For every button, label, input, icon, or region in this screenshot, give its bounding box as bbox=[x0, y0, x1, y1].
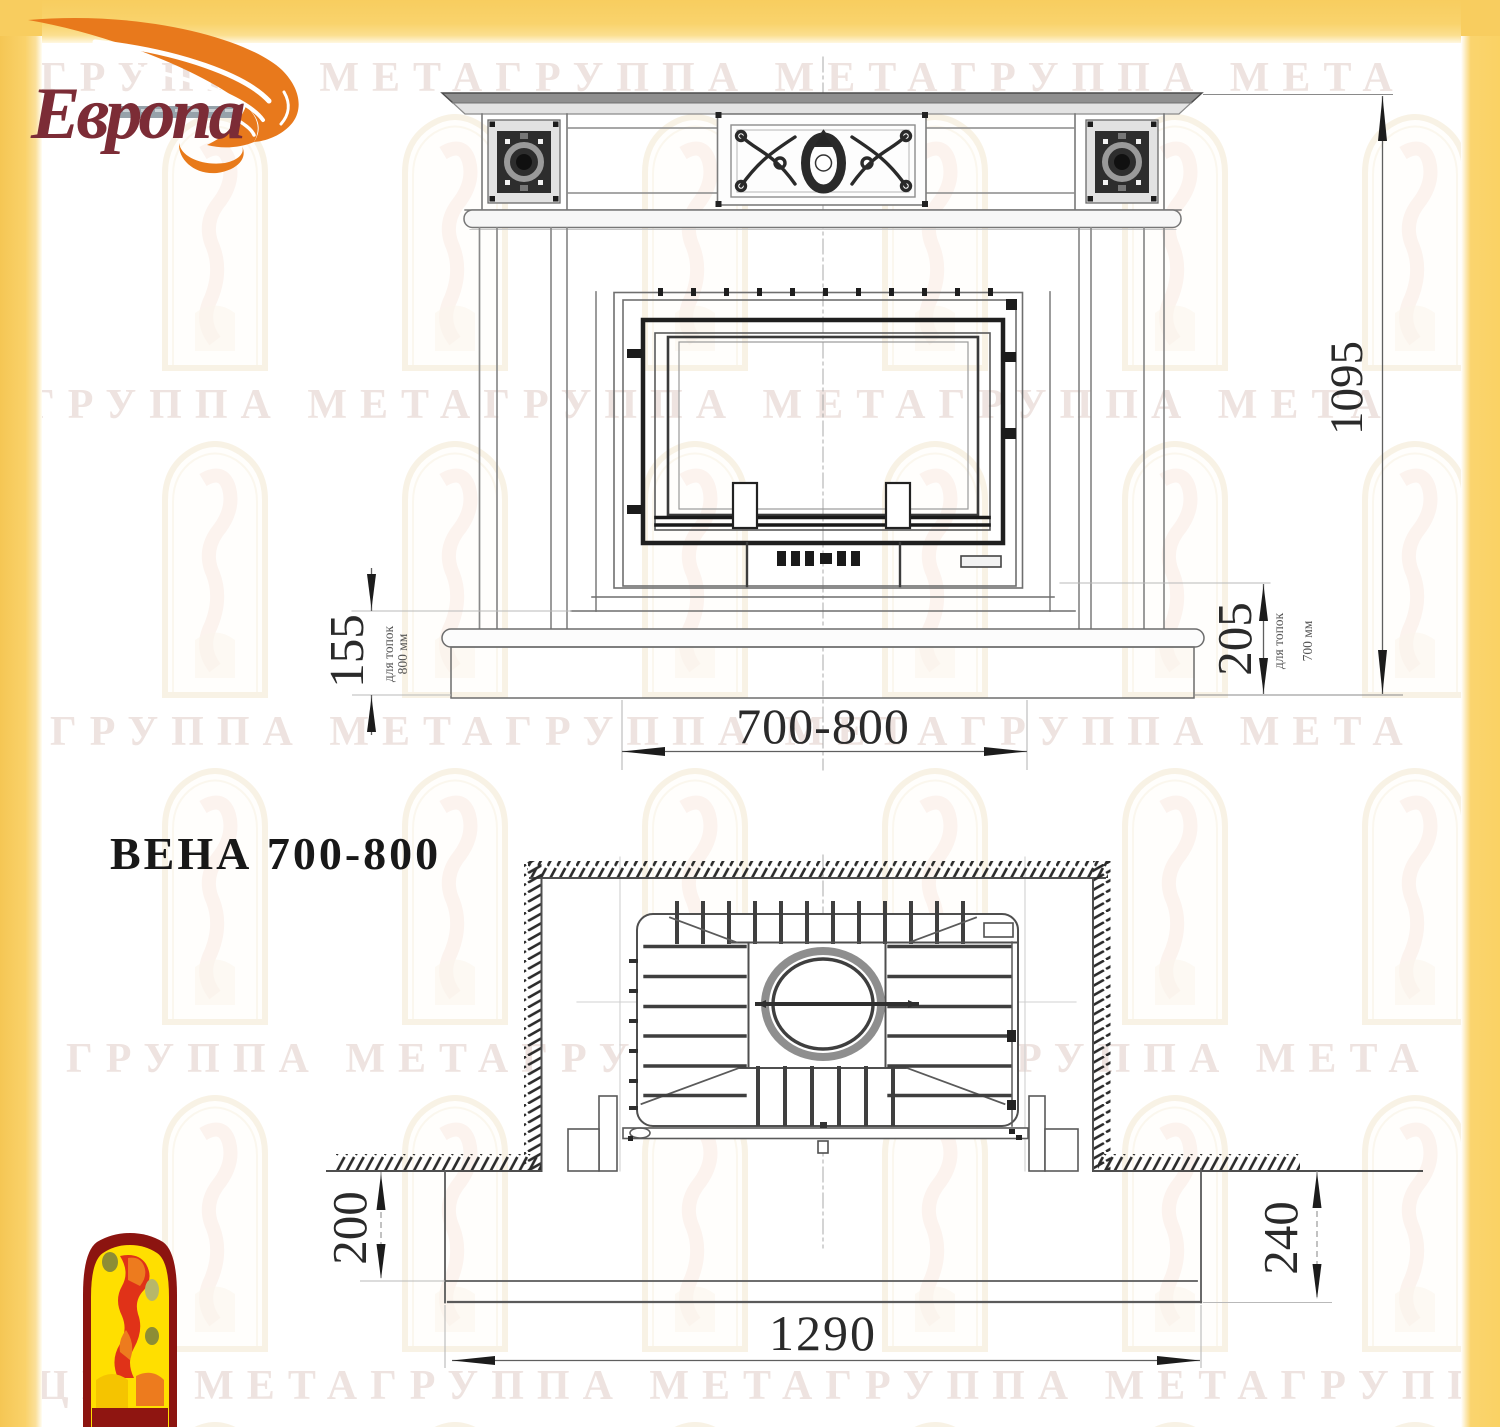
svg-text:155: 155 bbox=[319, 614, 374, 688]
svg-text:Европа: Европа bbox=[30, 73, 245, 155]
svg-text:205: 205 bbox=[1207, 602, 1262, 676]
svg-text:240: 240 bbox=[1253, 1201, 1308, 1275]
svg-text:800 мм: 800 мм bbox=[395, 633, 410, 674]
svg-text:200: 200 bbox=[322, 1191, 377, 1265]
svg-text:1095: 1095 bbox=[1321, 341, 1373, 435]
svg-text:ГРУППА МЕТАГРУППА МЕТАГРУППА М: ГРУППА МЕТАГРУППА МЕТАГРУППА МЕТА bbox=[50, 709, 1416, 755]
svg-text:700-800: 700-800 bbox=[736, 698, 910, 754]
svg-text:1290: 1290 bbox=[769, 1305, 877, 1361]
svg-text:для топок: для топок bbox=[381, 625, 396, 682]
svg-text:700 мм: 700 мм bbox=[1300, 620, 1315, 661]
svg-text:для топок: для топок bbox=[1271, 612, 1286, 669]
svg-text:ВЕНА 700-800: ВЕНА 700-800 bbox=[110, 828, 441, 879]
svg-text:ЦЦА МЕТАГРУППА МЕТАГРУППА МЕТА: ЦЦА МЕТАГРУППА МЕТАГРУППА МЕТАГРУППА bbox=[36, 1363, 1500, 1409]
svg-text:ГРУППА МЕТАГРУППА МЕТАГРУППА М: ГРУППА МЕТАГРУППА МЕТАГРУППА МЕТА bbox=[28, 382, 1394, 428]
